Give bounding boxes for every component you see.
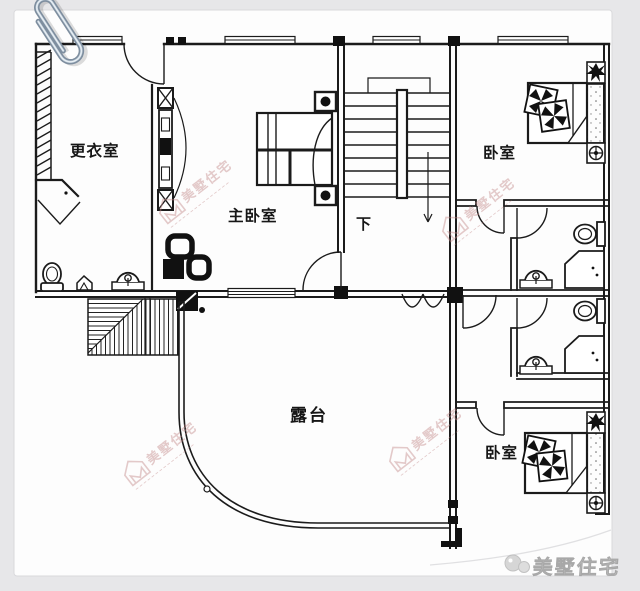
column-terrace <box>447 287 463 303</box>
room-label-bedroom-bottom: 卧室 <box>485 443 518 462</box>
paper-sheet <box>14 10 612 576</box>
lamp-icon <box>590 497 603 510</box>
toilet-icon <box>574 299 605 323</box>
room-label-master: 主卧室 <box>228 206 278 225</box>
brand-text: 美墅住宅 <box>532 555 622 579</box>
floor-plan-page: 更衣室 主卧室 <box>0 0 640 591</box>
stairs-down-label: 下 <box>356 215 371 233</box>
room-label-bedroom-top: 卧室 <box>483 143 516 162</box>
room-label-terrace: 露台 <box>290 405 328 426</box>
lamp-icon <box>590 147 603 160</box>
planter-hatch <box>88 297 178 355</box>
toilet-icon <box>574 222 605 246</box>
room-label-dressing: 更衣室 <box>70 141 120 160</box>
stair-rail-core <box>397 90 407 198</box>
bed-icon <box>257 113 332 185</box>
floor-plan-drawing: 更衣室 主卧室 <box>0 0 640 591</box>
brand-logo-icon <box>519 562 530 573</box>
toilet-icon <box>41 263 63 291</box>
